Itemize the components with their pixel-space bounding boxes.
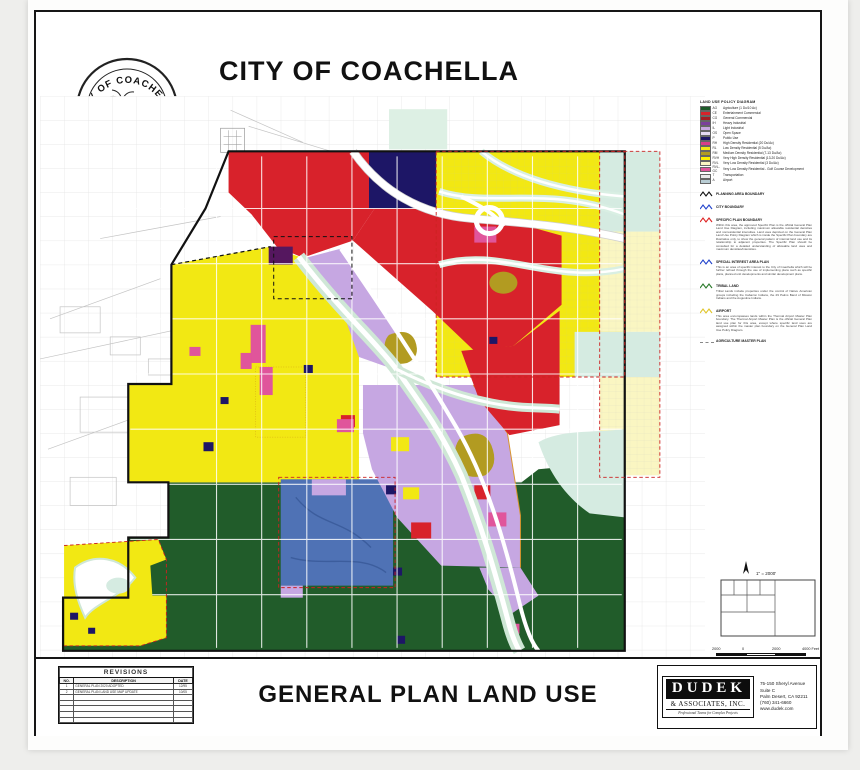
- legend-boundaries: PLANNING AREA BOUNDARYCITY BOUNDARYSPECI…: [700, 191, 818, 344]
- revisions-cell: [74, 717, 174, 723]
- legend-code: RM: [713, 152, 722, 156]
- firm-name-sub: & ASSOCIATES, INC.: [666, 700, 750, 710]
- scale-bar-segment: [776, 653, 806, 656]
- title-block: REVISIONS NO.DESCRIPTIONDATE 1GENERAL PL…: [36, 657, 820, 736]
- legend-code: A: [713, 179, 722, 183]
- legend-boundary-label: AIRPORT: [716, 309, 731, 313]
- scale-bar-label: 2000: [772, 647, 780, 651]
- zigzag-icon: [700, 259, 714, 265]
- legend-label: High Density Residential (20 Du/Ac): [723, 142, 774, 146]
- map-canvas: [40, 96, 705, 658]
- index-map: [720, 579, 816, 637]
- legend-items: AGAgriculture (1 Du/10 Ac)CEEntertainmen…: [700, 106, 818, 184]
- legend-boundary-label: SPECIAL INTEREST AREA PLAN: [716, 260, 769, 264]
- legend-boundary: AGRICULTURE MASTER PLAN: [700, 339, 818, 343]
- paper-sheet: CITY OF COACHELLA CITY OF COACHELLA CALI…: [28, 0, 848, 750]
- zigzag-icon: [700, 191, 714, 197]
- legend-label: Very Low Density Residential - Golf Cour…: [723, 168, 804, 172]
- legend-swatch: [700, 161, 711, 166]
- zigzag-icon: [700, 283, 714, 289]
- legend-note: This is an area of specific interest to …: [716, 266, 812, 277]
- zigzag-icon: [700, 217, 714, 223]
- legend-boundary: SPECIAL INTEREST AREA PLAN: [700, 259, 818, 265]
- legend-code: CG: [713, 117, 722, 121]
- legend-label: Very Low Density Residential (3 Du/Ac): [723, 162, 779, 166]
- legend-label: Agriculture (1 Du/10 Ac): [723, 107, 757, 111]
- legend: LAND USE POLICY DIAGRAM AGAgriculture (1…: [700, 100, 818, 343]
- legend-swatch: [700, 167, 711, 172]
- dash-icon: [700, 342, 714, 343]
- firm-block: DUDEK & ASSOCIATES, INC. Professional Te…: [657, 665, 817, 729]
- legend-note: Tribal Lands include properties under th…: [716, 290, 812, 301]
- legend-boundary-label: TRIBAL LAND: [716, 284, 739, 288]
- table-row: [60, 717, 193, 723]
- legend-label: Entertainment Commercial: [723, 112, 761, 116]
- scale-ratio: 1" = 2000': [756, 571, 776, 576]
- legend-title: LAND USE POLICY DIAGRAM: [700, 100, 818, 104]
- firm-logo: DUDEK & ASSOCIATES, INC. Professional Te…: [662, 676, 754, 718]
- legend-swatch: [700, 179, 711, 184]
- legend-code: RVH: [713, 157, 722, 161]
- map-frame: CITY OF COACHELLA CITY OF COACHELLA CALI…: [34, 10, 822, 736]
- legend-label: Public Use: [723, 137, 738, 141]
- legend-code: CE: [713, 112, 722, 116]
- legend-code: IL: [713, 127, 722, 131]
- legend-boundary: SPECIFIC PLAN BOUNDARY: [700, 217, 818, 223]
- north-arrow-icon: [740, 560, 752, 576]
- legend-item: RVL-GCVery Low Density Residential - Gol…: [700, 166, 818, 174]
- legend-boundary: AIRPORT: [700, 308, 818, 314]
- legend-boundary-label: AGRICULTURE MASTER PLAN: [716, 339, 766, 343]
- scale-bar-label: 0: [742, 647, 744, 651]
- legend-boundary-label: CITY BOUNDARY: [716, 205, 744, 209]
- zigzag-icon: [700, 204, 714, 210]
- scale-bar-segment: [746, 653, 776, 656]
- legend-label: Airport: [723, 179, 732, 183]
- firm-address-line: 75-150 Sheryl Avenue: [760, 681, 808, 687]
- legend-code: AG: [713, 107, 722, 111]
- legend-code: IH: [713, 122, 722, 126]
- firm-name: DUDEK: [666, 679, 750, 699]
- legend-code: OS: [713, 132, 722, 136]
- legend-label: Low Density Residential (5 Du/Ac): [723, 147, 771, 151]
- legend-label: Open Space: [723, 132, 741, 136]
- legend-boundary-label: PLANNING AREA BOUNDARY: [716, 192, 764, 196]
- zigzag-icon: [700, 308, 714, 314]
- scale-bar-label: 4000 Feet: [802, 647, 819, 651]
- legend-boundary: CITY BOUNDARY: [700, 204, 818, 210]
- legend-label: Medium Density Residential (7-13 Du/Ac): [723, 152, 781, 156]
- revisions-cell: [60, 717, 74, 723]
- legend-note: Within this area, the approved Specific …: [716, 224, 812, 252]
- legend-note: This area encompasses lands within the T…: [716, 315, 812, 333]
- legend-label: Light Industrial: [723, 127, 744, 131]
- legend-item: AAirport: [700, 179, 818, 184]
- legend-boundary: PLANNING AREA BOUNDARY: [700, 191, 818, 197]
- legend-code: P: [713, 137, 722, 141]
- revisions-cell: [173, 717, 192, 723]
- legend-code: RH: [713, 142, 722, 146]
- scale-bar-segment: [716, 653, 746, 656]
- firm-address: 75-150 Sheryl AvenueSuite CPalm Desert, …: [760, 681, 808, 712]
- legend-code: RL: [713, 147, 722, 151]
- legend-boundary-label: SPECIFIC PLAN BOUNDARY: [716, 218, 762, 222]
- page: { "header": { "title": "CITY OF COACHELL…: [0, 0, 860, 770]
- scale-block: 1" = 2000' 2000020004000 Feet OCTOBER 20…: [712, 560, 824, 666]
- legend-label: General Commercial: [723, 117, 752, 121]
- firm-tagline: Professional Teams for Complex Projects: [666, 711, 750, 715]
- firm-address-line: www.dudek.com: [760, 706, 808, 712]
- legend-label: Heavy Industrial: [723, 122, 746, 126]
- revisions-title: REVISIONS: [60, 668, 193, 678]
- legend-label: Very High Density Residential (13-20 Du/…: [723, 157, 786, 161]
- scale-bar-label: 2000: [712, 647, 720, 651]
